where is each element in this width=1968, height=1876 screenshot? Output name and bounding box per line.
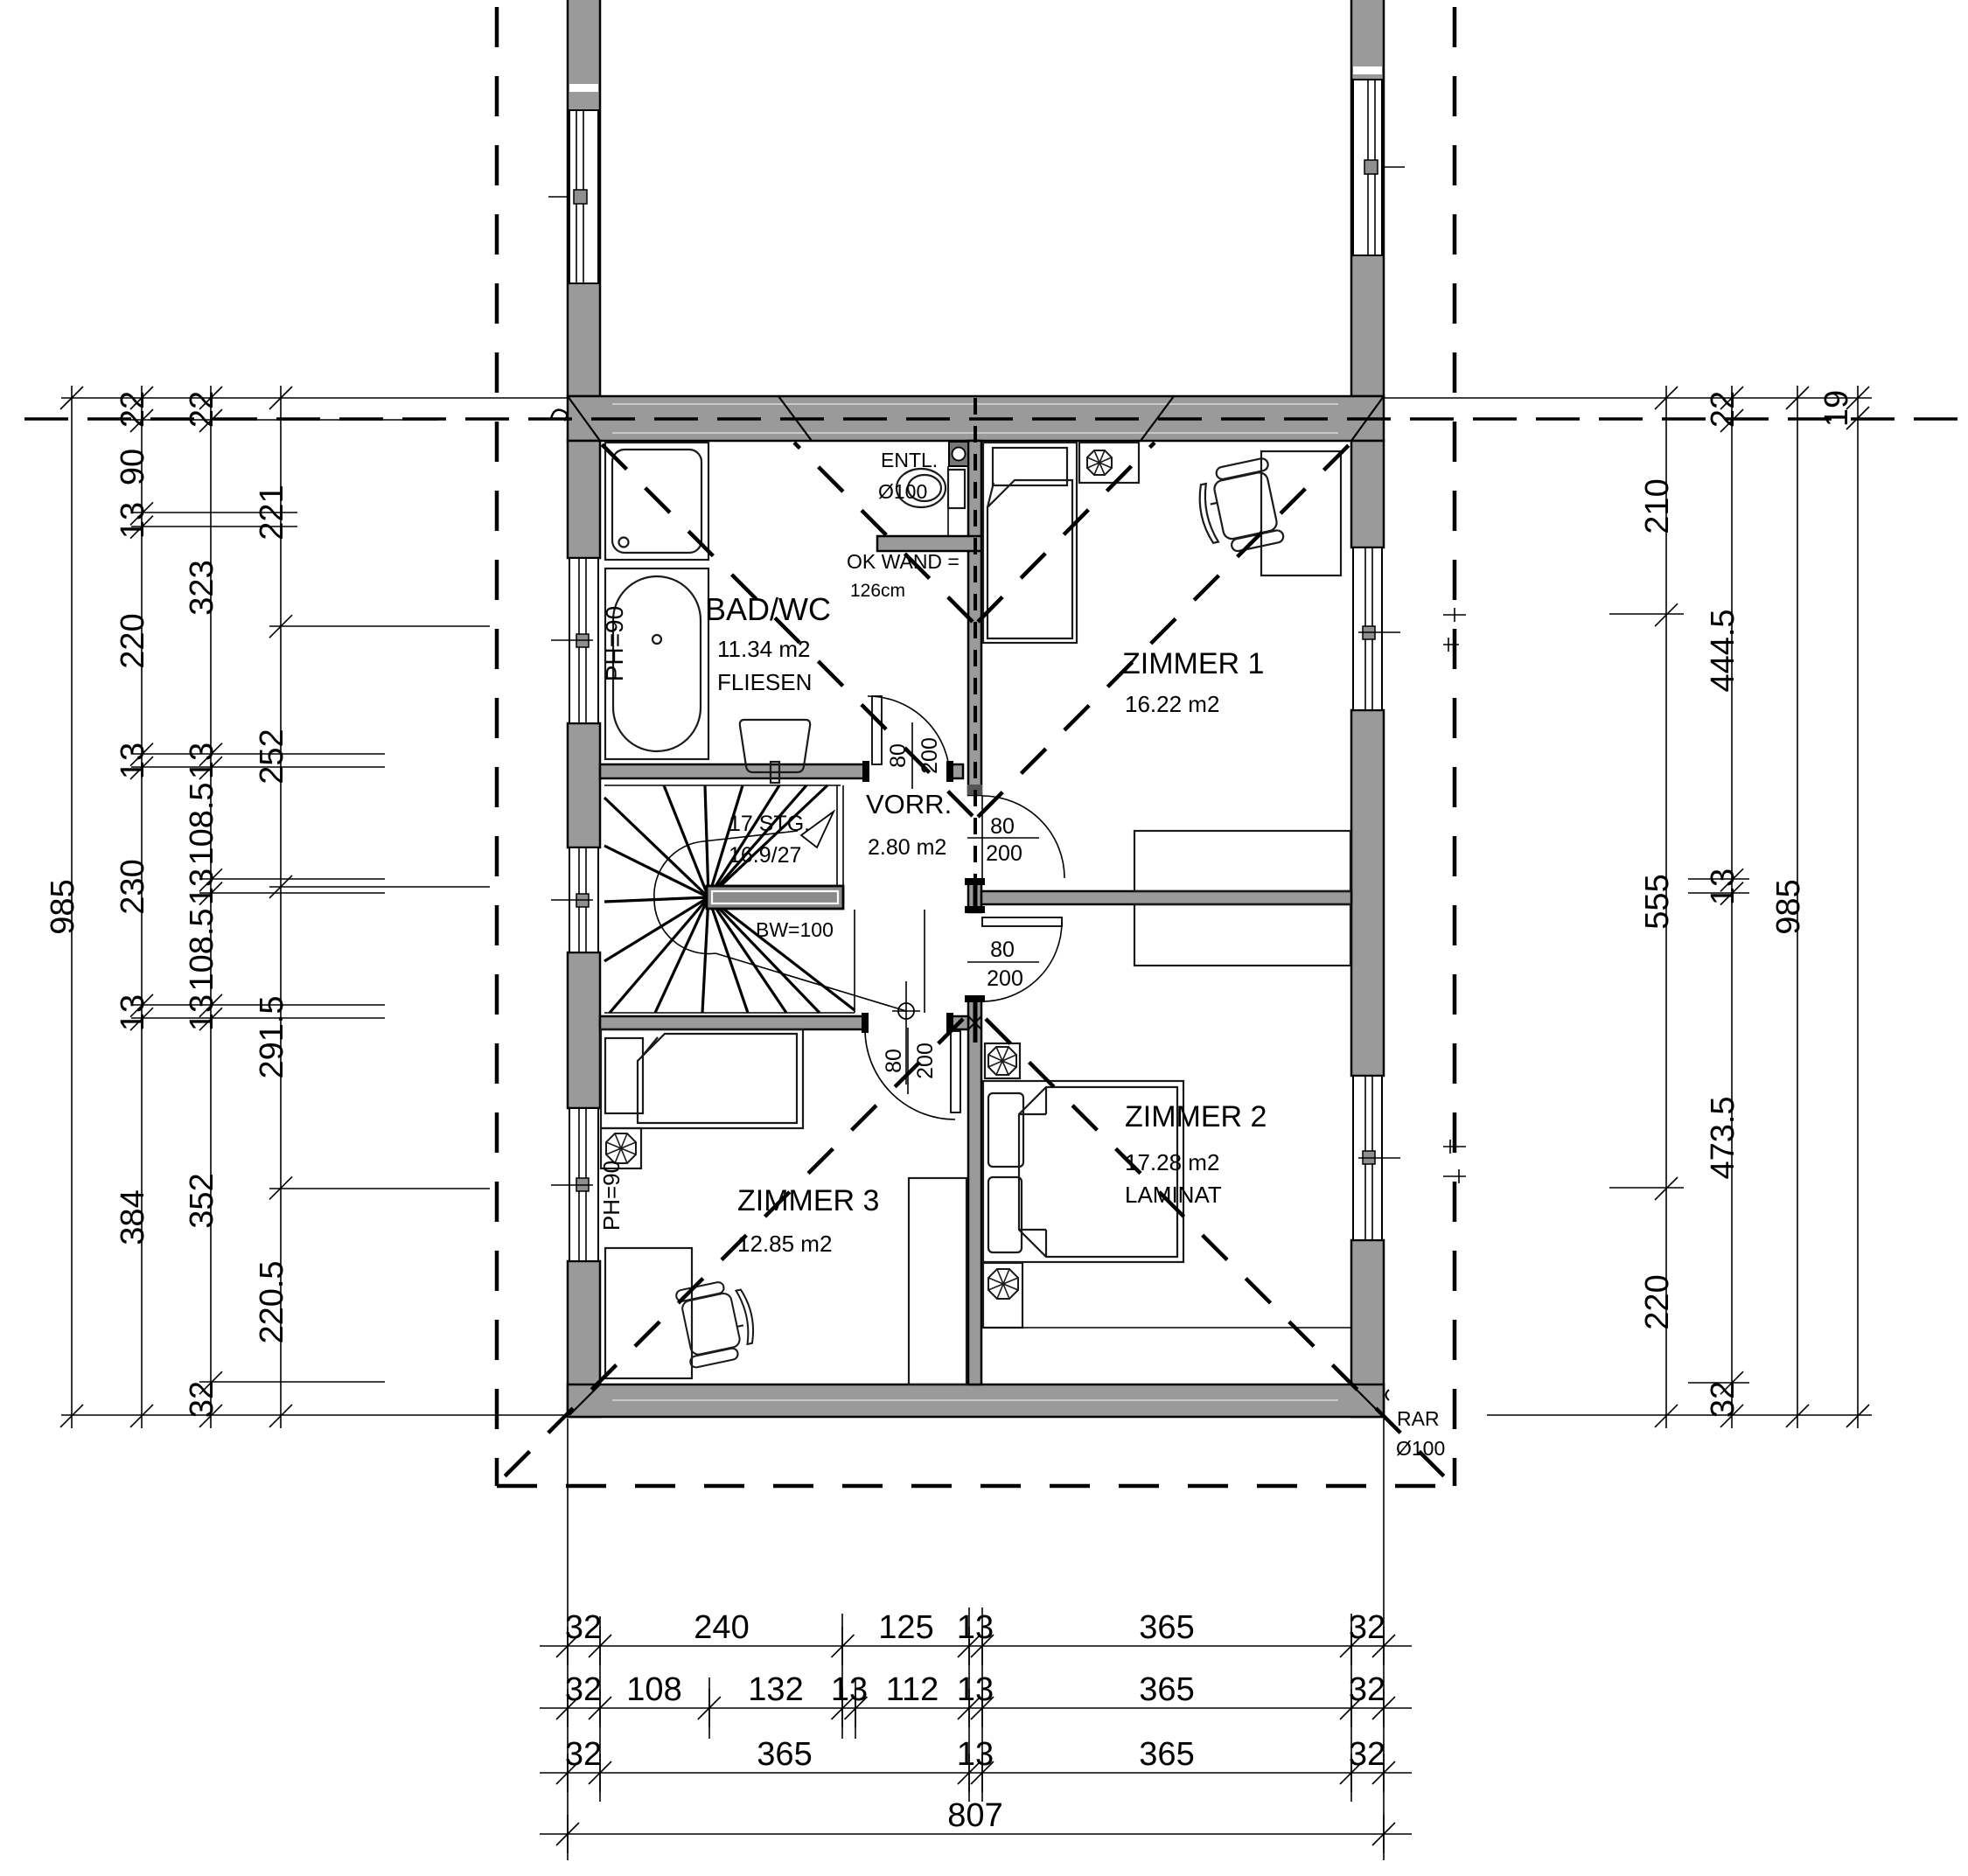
svg-text:FLIESEN: FLIESEN (717, 669, 812, 695)
svg-text:323: 323 (184, 560, 220, 615)
svg-text:32: 32 (1349, 1671, 1385, 1708)
svg-text:PH=90: PH=90 (601, 606, 628, 681)
svg-text:17 STG.: 17 STG. (729, 812, 810, 836)
svg-text:2.80 m2: 2.80 m2 (868, 835, 946, 860)
svg-text:132: 132 (748, 1671, 803, 1708)
svg-text:13: 13 (184, 994, 220, 1031)
svg-text:384: 384 (115, 1189, 151, 1245)
svg-text:PH=90: PH=90 (598, 1161, 625, 1231)
svg-text:80: 80 (990, 814, 1015, 839)
svg-text:13: 13 (115, 502, 151, 539)
svg-text:13: 13 (184, 743, 220, 779)
svg-text:BAD/WC: BAD/WC (705, 591, 831, 627)
svg-text:19: 19 (1818, 390, 1855, 427)
svg-text:252: 252 (254, 729, 290, 784)
svg-text:32: 32 (565, 1736, 602, 1773)
svg-text:16.9/27: 16.9/27 (729, 843, 801, 868)
svg-text:200: 200 (986, 841, 1022, 866)
svg-text:32: 32 (1705, 1381, 1741, 1418)
svg-text:108: 108 (626, 1671, 681, 1708)
svg-text:444.5: 444.5 (1705, 609, 1741, 692)
svg-text:ZIMMER 2: ZIMMER 2 (1125, 1100, 1267, 1133)
svg-text:13: 13 (184, 868, 220, 905)
svg-text:80: 80 (886, 743, 911, 768)
svg-text:12.85 m2: 12.85 m2 (737, 1231, 832, 1257)
svg-text:200: 200 (987, 966, 1023, 991)
svg-text:17.28 m2: 17.28 m2 (1125, 1149, 1219, 1175)
svg-text:80: 80 (882, 1049, 906, 1073)
svg-text:32: 32 (565, 1671, 602, 1708)
svg-text:126cm: 126cm (850, 581, 905, 601)
svg-text:985: 985 (1770, 879, 1807, 934)
svg-text:108.5: 108.5 (184, 782, 220, 865)
svg-text:985: 985 (45, 879, 81, 934)
svg-text:200: 200 (913, 1043, 938, 1079)
svg-text:365: 365 (1139, 1609, 1194, 1646)
svg-text:ZIMMER 1: ZIMMER 1 (1122, 647, 1264, 680)
svg-text:13: 13 (957, 1736, 994, 1773)
svg-text:220: 220 (1639, 1274, 1676, 1329)
svg-text:108.5: 108.5 (184, 908, 220, 991)
svg-text:VORR.: VORR. (866, 789, 952, 819)
svg-text:13: 13 (957, 1609, 994, 1646)
svg-text:22: 22 (1705, 391, 1741, 428)
svg-text:352: 352 (184, 1173, 220, 1228)
svg-text:22: 22 (184, 391, 220, 428)
svg-text:OK WAND =: OK WAND = (847, 550, 960, 573)
svg-text:32: 32 (1349, 1736, 1385, 1773)
svg-text:13: 13 (831, 1671, 868, 1708)
svg-text:22: 22 (115, 391, 151, 428)
svg-text:365: 365 (1139, 1736, 1194, 1773)
svg-text:ENTL.: ENTL. (881, 449, 938, 471)
svg-text:220.5: 220.5 (254, 1260, 290, 1343)
svg-text:13: 13 (115, 743, 151, 779)
svg-text:90: 90 (115, 449, 151, 485)
svg-text:230: 230 (115, 859, 151, 914)
svg-text:13: 13 (1705, 868, 1741, 905)
svg-text:291.5: 291.5 (254, 995, 290, 1078)
svg-text:32: 32 (565, 1609, 602, 1646)
svg-text:125: 125 (878, 1609, 933, 1646)
svg-text:BW=100: BW=100 (756, 918, 834, 941)
svg-text:555: 555 (1639, 874, 1676, 929)
svg-text:11.34 m2: 11.34 m2 (717, 636, 810, 662)
svg-text:Ø100: Ø100 (1396, 1437, 1445, 1460)
svg-text:365: 365 (757, 1736, 812, 1773)
svg-text:240: 240 (694, 1609, 749, 1646)
svg-text:473.5: 473.5 (1705, 1096, 1741, 1179)
svg-text:32: 32 (1349, 1609, 1385, 1646)
svg-text:365: 365 (1139, 1671, 1194, 1708)
svg-text:220: 220 (115, 613, 151, 668)
svg-text:RAR: RAR (1397, 1407, 1440, 1430)
svg-text:200: 200 (918, 737, 942, 774)
svg-text:80: 80 (990, 938, 1015, 962)
svg-text:13: 13 (115, 994, 151, 1031)
svg-text:ZIMMER 3: ZIMMER 3 (737, 1184, 879, 1217)
svg-text:210: 210 (1639, 478, 1676, 534)
svg-text:807: 807 (947, 1797, 1002, 1834)
svg-text:13: 13 (957, 1671, 994, 1708)
svg-text:16.22 m2: 16.22 m2 (1125, 691, 1219, 717)
svg-text:Ø100: Ø100 (878, 480, 927, 503)
svg-text:32: 32 (184, 1381, 220, 1418)
svg-text:112: 112 (886, 1671, 939, 1708)
svg-text:LAMINAT: LAMINAT (1125, 1182, 1222, 1208)
